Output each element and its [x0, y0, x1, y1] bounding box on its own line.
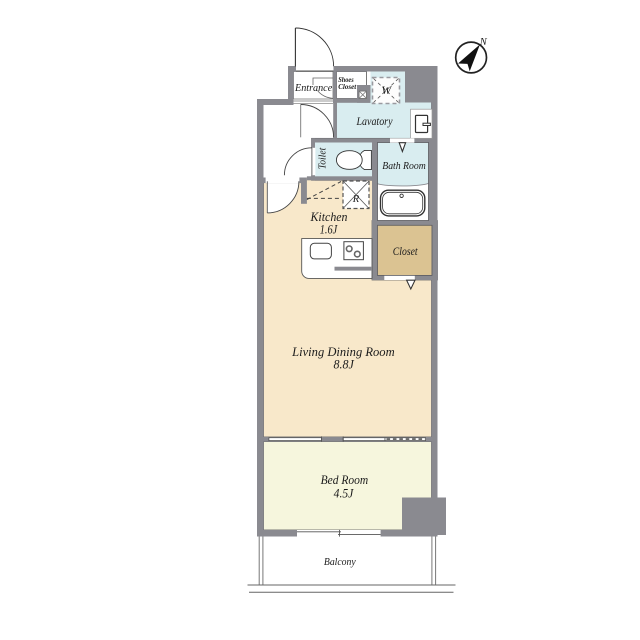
svg-text:Closet: Closet: [338, 83, 357, 91]
svg-text:Bed Room: Bed Room: [321, 472, 369, 487]
svg-text:Lavatory: Lavatory: [356, 114, 393, 128]
svg-text:W: W: [382, 85, 393, 97]
svg-text:Toilet: Toilet: [318, 147, 329, 169]
svg-text:8.8J: 8.8J: [334, 358, 356, 372]
svg-text:R: R: [352, 194, 360, 205]
svg-text:N: N: [479, 37, 488, 48]
svg-text:Closet: Closet: [393, 246, 418, 258]
svg-text:Entrance: Entrance: [294, 82, 332, 94]
svg-text:Balcony: Balcony: [324, 557, 356, 568]
svg-text:1.6J: 1.6J: [320, 223, 339, 237]
svg-text:4.5J: 4.5J: [334, 486, 355, 500]
svg-text:Bath Room: Bath Room: [382, 160, 426, 172]
